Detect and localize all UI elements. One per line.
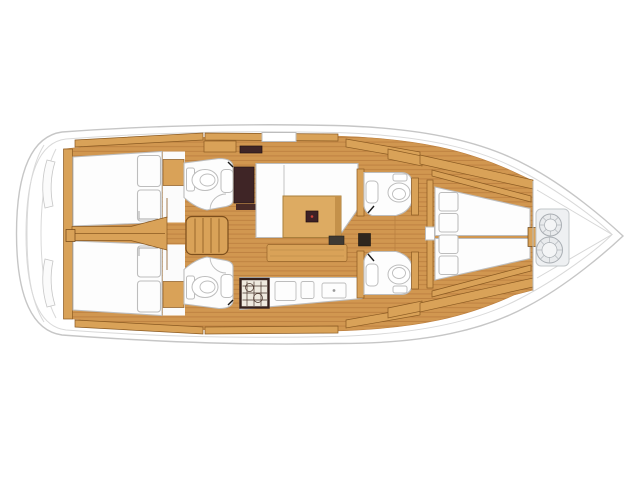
rope-coil-1-inner (545, 219, 557, 231)
floor-plan-canvas (0, 0, 640, 479)
aft-cabin-lower-wardrobe (163, 282, 184, 308)
fwd-head-upper-sink (366, 181, 378, 203)
aft-cabin-upper-wardrobe (163, 160, 184, 186)
aft-cabin-upper (73, 152, 185, 227)
fwd-bulkhead-upper (427, 180, 433, 227)
aft-head-upper (184, 159, 233, 211)
trim-bottom-mid (205, 326, 338, 334)
table-center-dot (311, 215, 314, 218)
fwd-head-upper-side-locker (412, 178, 419, 215)
v-berth-pillow-3 (439, 235, 458, 254)
sliding-hatch (262, 133, 296, 142)
hatch-dark-trim (240, 146, 262, 153)
salon-dark-item-2 (359, 234, 371, 247)
aft-cabin-upper-pillow-1 (138, 156, 161, 187)
mast-foot-block (528, 228, 536, 247)
fwd-bulkhead-lower (427, 240, 433, 288)
aft-cabin-lower-pillow-1 (138, 246, 161, 277)
fwd-head-lower-toilet-tank (393, 286, 407, 293)
fwd-head-lower-sink (366, 264, 378, 286)
steps-body (186, 217, 228, 255)
aft-cabin-lower-pillow-2 (138, 281, 161, 312)
companionway-steps (186, 217, 228, 255)
rope-coil-2 (537, 237, 563, 263)
nav-station-desk (234, 167, 254, 203)
fwd-head-lower-wardrobe (357, 251, 364, 298)
aft-head-lower-toilet-bowl (192, 277, 218, 298)
galley-faucet-dot (333, 289, 336, 292)
boat-floor-plan-page (0, 0, 640, 479)
aft-head-upper-sink (221, 170, 233, 193)
v-berth-pillow-4 (439, 256, 458, 275)
fwd-head-upper-toilet-tank (393, 174, 407, 181)
aft-cabin-upper-pillow-2 (138, 190, 161, 221)
salon-table-edge (335, 196, 341, 238)
aft-cabin-lower (73, 241, 185, 316)
salon-bench (267, 245, 347, 262)
rope-coil-2-inner (542, 243, 557, 258)
v-berth-pillow-1 (439, 193, 458, 212)
aft-head-lower (184, 257, 233, 309)
corridor-step-block (66, 230, 75, 242)
aft-head-lower-sink (221, 275, 233, 298)
rope-coil-1 (540, 214, 562, 236)
fwd-head-lower-side-locker (412, 252, 419, 289)
v-berth-pillow-2 (439, 214, 458, 233)
trim-hatch-shelf (204, 141, 236, 152)
salon-dark-item-1 (329, 236, 344, 245)
aft-head-upper-toilet-bowl (192, 170, 218, 191)
fwd-cabin-door (426, 227, 435, 240)
fwd-head-upper-wardrobe (357, 169, 364, 216)
